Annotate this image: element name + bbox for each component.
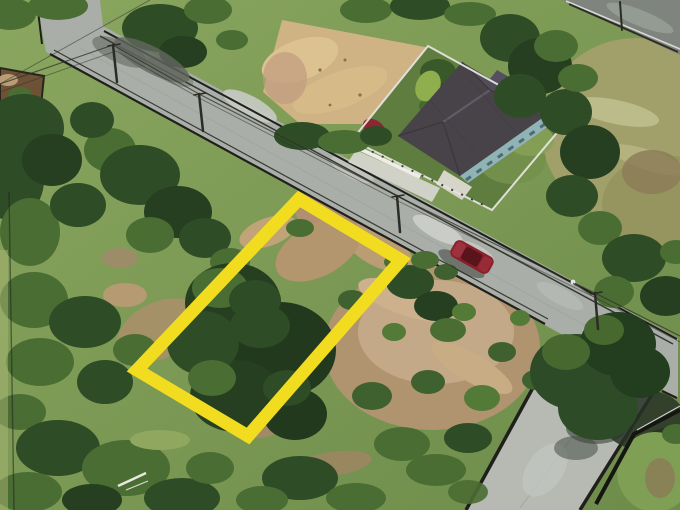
dirt-patch: [102, 248, 138, 268]
aerial-photo-canvas: [0, 0, 680, 510]
aerial-photo: [0, 0, 680, 510]
left-track: [0, 250, 8, 510]
